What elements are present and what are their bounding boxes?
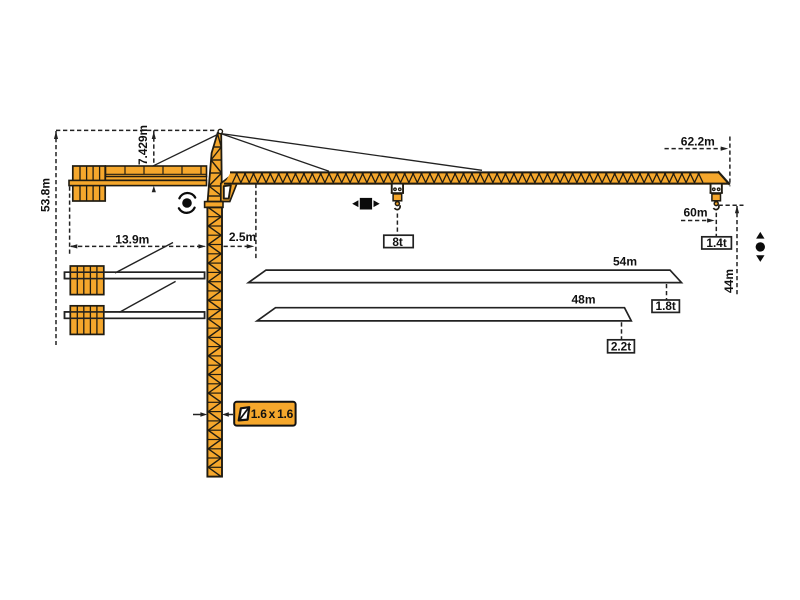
svg-text:1.6 x 1.6: 1.6 x 1.6 [251, 407, 294, 421]
svg-text:2.5m: 2.5m [229, 230, 256, 244]
svg-text:13.9m: 13.9m [115, 233, 149, 247]
svg-text:60m: 60m [683, 205, 707, 219]
svg-text:53.8m: 53.8m [39, 178, 53, 212]
svg-text:54m: 54m [613, 255, 637, 269]
svg-text:1.8t: 1.8t [656, 299, 676, 313]
svg-text:7.429m: 7.429m [136, 125, 150, 165]
svg-text:1.4t: 1.4t [706, 236, 726, 250]
svg-text:8t: 8t [392, 235, 403, 249]
svg-text:44m: 44m [722, 269, 736, 293]
svg-text:2.2t: 2.2t [611, 339, 631, 353]
svg-text:62.2m: 62.2m [681, 135, 715, 149]
svg-text:48m: 48m [571, 292, 595, 306]
